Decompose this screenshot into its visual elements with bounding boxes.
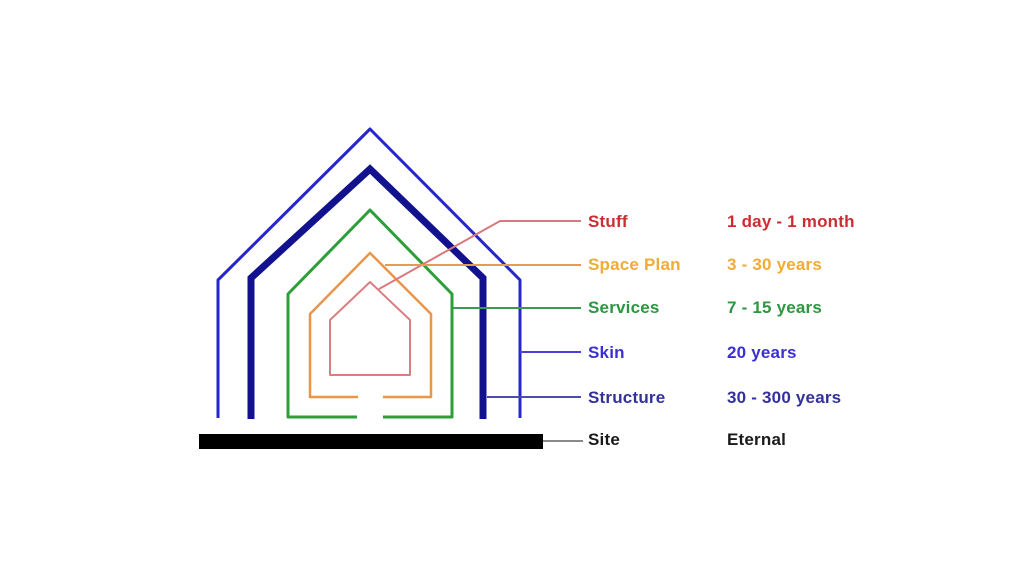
legend-row-space-plan: Space Plan 3 - 30 years <box>0 256 1024 274</box>
layer-duration-services: 7 - 15 years <box>727 299 822 317</box>
layer-label-structure: Structure <box>588 389 665 407</box>
legend-row-structure: Structure 30 - 300 years <box>0 389 1024 407</box>
layer-label-services: Services <box>588 299 660 317</box>
house-diagram-canvas <box>0 0 1024 576</box>
layer-label-skin: Skin <box>588 344 625 362</box>
legend-row-skin: Skin 20 years <box>0 344 1024 362</box>
layer-duration-stuff: 1 day - 1 month <box>727 213 855 231</box>
legend-row-services: Services 7 - 15 years <box>0 299 1024 317</box>
layer-label-site: Site <box>588 431 620 449</box>
layer-duration-site: Eternal <box>727 431 786 449</box>
layer-label-space-plan: Space Plan <box>588 256 681 274</box>
legend-row-stuff: Stuff 1 day - 1 month <box>0 213 1024 231</box>
layer-duration-skin: 20 years <box>727 344 797 362</box>
layer-label-stuff: Stuff <box>588 213 628 231</box>
legend-row-site: Site Eternal <box>0 431 1024 449</box>
layer-duration-structure: 30 - 300 years <box>727 389 841 407</box>
layer-duration-space-plan: 3 - 30 years <box>727 256 822 274</box>
shearing-layers-diagram: Stuff 1 day - 1 month Space Plan 3 - 30 … <box>0 0 1024 576</box>
